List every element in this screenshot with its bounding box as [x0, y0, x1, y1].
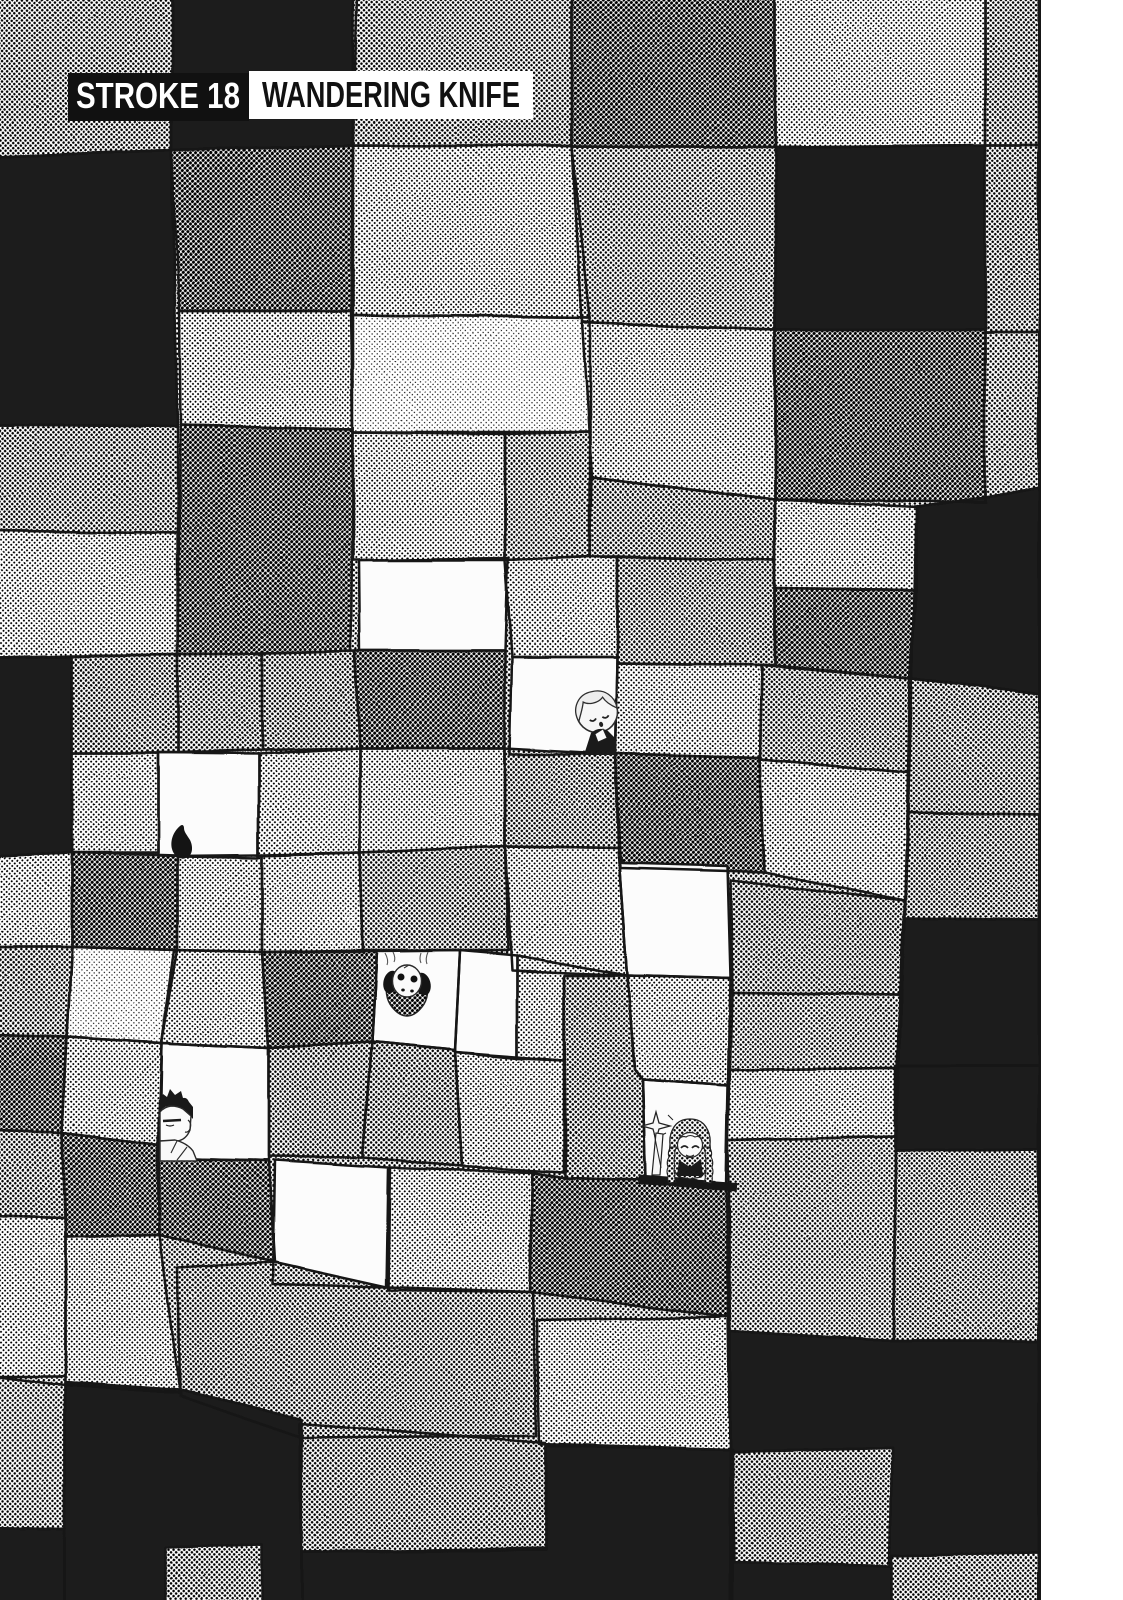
svg-text:STROKE 18: STROKE 18 [76, 75, 240, 116]
svg-text:WANDERING KNIFE: WANDERING KNIFE [262, 74, 520, 115]
